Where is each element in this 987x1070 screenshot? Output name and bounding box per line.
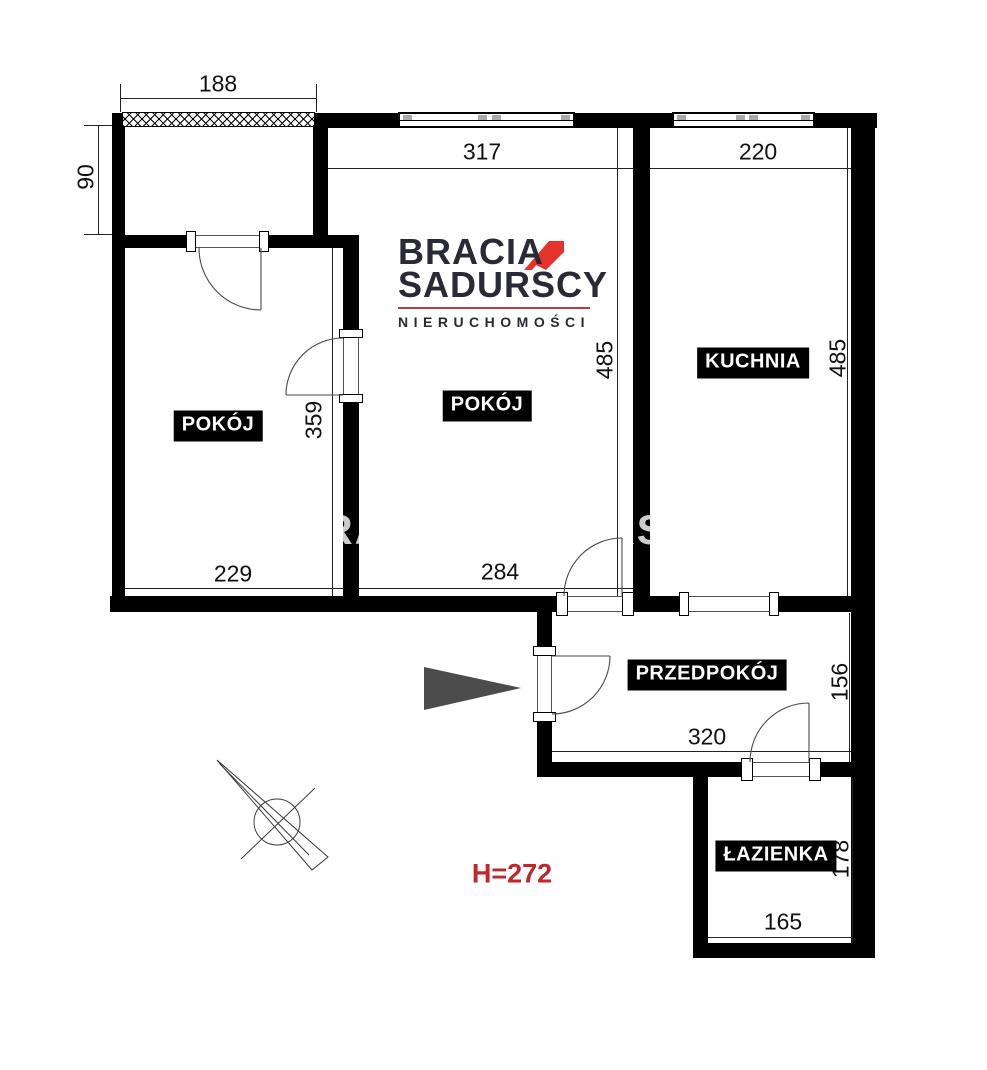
wall-right-exterior: [851, 113, 875, 958]
wall-bathroom-bottom: [693, 943, 875, 958]
door-swing-bathroom: [750, 703, 809, 762]
brand-line3: NIERUCHOMOŚCI: [398, 314, 608, 330]
door-jamb: [769, 592, 779, 616]
dim-165: 165: [764, 909, 802, 936]
wall-top-segment-a: [318, 113, 398, 128]
door-opening-balcony: [196, 235, 259, 248]
dim-188: 188: [199, 71, 237, 98]
window-pokoj-middle: [398, 112, 575, 128]
wall-hall-left-upper: [537, 612, 552, 650]
door-jamb: [339, 394, 363, 403]
dim-line: [359, 588, 633, 589]
dim-485-left: 485: [592, 341, 619, 379]
door-opening-between-rooms: [343, 338, 359, 395]
door-jamb: [679, 592, 689, 616]
brand-logo: BRACIA SADURSCY NIERUCHOMOŚCI: [398, 236, 608, 330]
dim-90: 90: [73, 164, 100, 190]
door-swing-balcony: [199, 248, 261, 310]
dim-220: 220: [739, 139, 777, 166]
north-indicator-icon: [217, 760, 328, 870]
door-jamb: [533, 646, 556, 656]
room-label-przedpokoj: PRZEDPOKÓJ: [628, 660, 787, 691]
door-jamb: [339, 329, 363, 338]
dim-tick: [84, 125, 112, 126]
wall-bottom-segment-c: [773, 596, 851, 612]
door-jamb: [741, 758, 753, 781]
brand-line2: SADURSCY: [398, 269, 608, 301]
brand-divider: [398, 307, 590, 309]
door-jamb: [259, 231, 269, 252]
dim-line: [708, 937, 852, 938]
dim-229: 229: [214, 561, 252, 588]
dim-line: [328, 168, 634, 169]
dim-line: [332, 248, 333, 596]
door-swing-entrance: [552, 656, 610, 714]
wall-bathroom-left: [693, 777, 708, 958]
wall-left-exterior: [112, 113, 125, 612]
wall-hall-bottom-a: [537, 762, 745, 777]
passage-kitchen-hall: [683, 596, 773, 612]
door-jamb: [186, 231, 196, 252]
dim-line: [125, 588, 343, 589]
door-swing-between-rooms: [286, 338, 343, 395]
wall-balcony-right: [313, 113, 328, 247]
door-opening-entrance: [537, 656, 552, 714]
floor-plan: BRACIA SADURSCY: [0, 0, 987, 1070]
dim-317: 317: [463, 139, 501, 166]
door-opening-bathroom: [753, 762, 809, 777]
dim-tick: [120, 84, 121, 112]
wall-bottom-segment-b: [633, 596, 683, 612]
door-jamb: [622, 592, 634, 616]
room-label-pokoj-middle: POKÓJ: [443, 391, 532, 422]
dim-156: 156: [827, 663, 854, 701]
ceiling-height-note: H=272: [472, 859, 552, 890]
wall-balcony-hatched: [122, 112, 315, 127]
entrance-arrow-icon: [424, 667, 521, 710]
door-jamb: [556, 592, 568, 616]
dim-tick: [84, 234, 112, 235]
door-opening-room-hall: [568, 596, 622, 612]
wall-divider1-upper: [343, 235, 359, 330]
dim-line: [552, 751, 851, 752]
wall-top-segment-b: [575, 113, 672, 128]
wall-hall-bottom-b: [821, 762, 851, 777]
dim-359: 359: [301, 401, 328, 439]
window-kuchnia: [672, 112, 815, 128]
wall-pokoj-left-top-a: [112, 235, 190, 248]
room-label-pokoj-left: POKÓJ: [174, 411, 263, 442]
room-label-lazienka: ŁAZIENKA: [715, 841, 836, 872]
dim-line: [650, 168, 851, 169]
dim-485-right: 485: [825, 339, 852, 377]
room-label-kuchnia: KUCHNIA: [697, 348, 809, 379]
dim-tick: [316, 84, 317, 112]
door-jamb: [533, 712, 556, 722]
dim-line: [120, 98, 317, 99]
dim-284: 284: [481, 559, 519, 586]
wall-bottom-segment-a: [110, 596, 558, 612]
watermark: BRACIA SADURSCY: [290, 506, 670, 554]
door-jamb: [809, 758, 821, 781]
dim-320: 320: [688, 724, 726, 751]
